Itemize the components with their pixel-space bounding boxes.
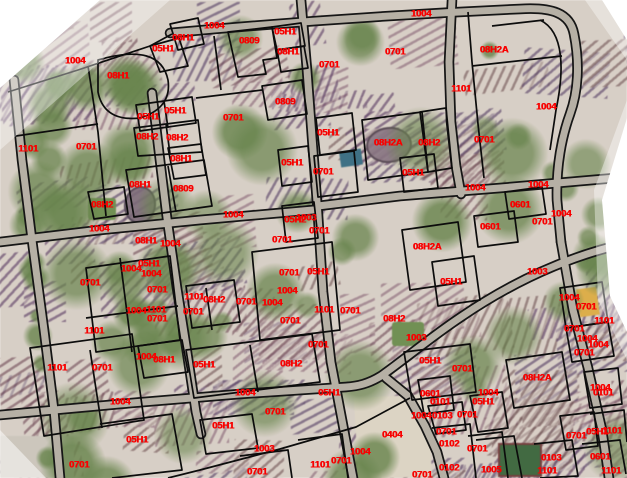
- parcel-label: 08H2A: [413, 242, 442, 253]
- parcel-label: 0701: [412, 470, 432, 478]
- parcel-label: 0701: [566, 431, 586, 442]
- parcel-label: 08H1: [277, 47, 299, 58]
- parcel-label: 0701: [309, 226, 329, 237]
- parcel-label: 0701: [247, 467, 267, 478]
- parcel-label: 1004: [411, 9, 431, 20]
- parcel-label: 0601: [480, 222, 500, 233]
- parcel-label: 1101: [602, 426, 622, 437]
- parcel-label: 0701: [92, 363, 112, 374]
- parcel-label: 05H1: [402, 168, 424, 179]
- parcel-label: 0701: [308, 340, 328, 351]
- parcel-label: 05H1: [212, 421, 234, 432]
- parcel-label: 08H2: [166, 133, 188, 144]
- parcel-label: 1101: [47, 363, 67, 374]
- parcel-label: 0102: [439, 439, 459, 450]
- parcel-label: 05H1: [137, 112, 159, 123]
- parcel-label: 08H1: [107, 71, 129, 82]
- parcel-label: 05H1: [152, 44, 174, 55]
- label-layer: 100408H1080905H108H11004070108H2A100405H…: [0, 0, 627, 478]
- parcel-label: 1004: [536, 102, 556, 113]
- parcel-label: 1004: [204, 21, 224, 32]
- parcel-label: 0701: [76, 142, 96, 153]
- parcel-label: 0701: [147, 285, 167, 296]
- parcel-label: 0701: [331, 456, 351, 467]
- parcel-label: 1004: [350, 447, 370, 458]
- parcel-label: 05H1: [164, 106, 186, 117]
- parcel-label: 1004: [126, 306, 146, 317]
- parcel-label: 1003: [527, 267, 547, 278]
- parcel-label: 0701: [147, 314, 167, 325]
- parcel-label: 0701: [319, 60, 339, 71]
- parcel-label: 0701: [313, 167, 333, 178]
- parcel-label: 1101: [184, 292, 204, 303]
- parcel-label: 08H2A: [374, 138, 403, 149]
- parcel-label: 0701: [457, 410, 477, 421]
- parcel-label: 1004: [141, 269, 161, 280]
- parcel-label: 1101: [537, 466, 557, 477]
- parcel-label: 0701: [236, 297, 256, 308]
- parcel-label: 08H2A: [523, 373, 552, 384]
- parcel-label: 1004: [110, 397, 130, 408]
- parcel-label: 0701: [280, 316, 300, 327]
- parcel-label: 1004: [262, 298, 282, 309]
- parcel-label: 0103: [432, 411, 452, 422]
- parcel-label: 1003: [254, 444, 274, 455]
- parcel-label: 0701: [467, 444, 487, 455]
- parcel-label: 0701: [80, 278, 100, 289]
- parcel-label: 05H1: [318, 388, 340, 399]
- parcel-label: 0701: [183, 307, 203, 318]
- parcel-label: 0809: [173, 184, 193, 195]
- parcel-label: 1101: [594, 316, 614, 327]
- parcel-label: 08H2: [280, 359, 302, 370]
- parcel-label: 1004: [65, 56, 85, 67]
- parcel-label: 1004: [89, 224, 109, 235]
- parcel-label: 0701: [223, 113, 243, 124]
- parcel-label: 05H1: [317, 128, 339, 139]
- parcel-label: 1101: [84, 326, 104, 337]
- parcel-label: 08H1: [129, 180, 151, 191]
- parcel-label: 08H2A: [480, 45, 509, 56]
- parcel-label: 0601: [510, 200, 530, 211]
- parcel-label: 0809: [239, 36, 259, 47]
- parcel-label: 1004: [551, 209, 571, 220]
- parcel-label: 1003: [296, 213, 316, 224]
- parcel-label: 1101: [451, 84, 471, 95]
- parcel-label: 0701: [385, 47, 405, 58]
- parcel-label: 0701: [279, 268, 299, 279]
- parcel-label: 1004: [223, 210, 243, 221]
- parcel-label: 05H1: [472, 397, 494, 408]
- parcel-label: 05H1: [307, 267, 329, 278]
- parcel-label: 0601: [590, 452, 610, 463]
- parcel-label: 08H2: [203, 295, 225, 306]
- map-canvas[interactable]: 100408H1080905H108H11004070108H2A100405H…: [0, 0, 627, 478]
- parcel-label: 1003: [406, 333, 426, 344]
- parcel-label: 08H2: [136, 132, 158, 143]
- parcel-label: 08H2: [418, 138, 440, 149]
- parcel-label: 0701: [532, 217, 552, 228]
- parcel-label: 0701: [576, 302, 596, 313]
- parcel-label: 0701: [69, 460, 89, 471]
- parcel-label: 08H1: [135, 236, 157, 247]
- parcel-label: 08H1: [170, 154, 192, 165]
- parcel-label: 0701: [452, 364, 472, 375]
- parcel-label: 0701: [340, 306, 360, 317]
- parcel-label: 08H1: [172, 33, 194, 44]
- parcel-label: 05H1: [281, 158, 303, 169]
- parcel-label: 08H2: [91, 200, 113, 211]
- parcel-label: 0701: [272, 235, 292, 246]
- parcel-label: 05H1: [126, 435, 148, 446]
- parcel-label: 0701: [474, 135, 494, 146]
- parcel-label: 1101: [18, 144, 38, 155]
- parcel-label: 0103: [541, 453, 561, 464]
- parcel-label: 1101: [314, 305, 334, 316]
- parcel-label: 0404: [382, 430, 402, 441]
- parcel-label: 1005: [481, 465, 501, 476]
- parcel-label: 1004: [160, 239, 180, 250]
- parcel-label: 0102: [439, 463, 459, 474]
- parcel-label: 1004: [121, 264, 141, 275]
- parcel-label: 1101: [601, 466, 621, 477]
- parcel-label: 0809: [275, 97, 295, 108]
- parcel-label: 1004: [528, 180, 548, 191]
- parcel-label: 1004: [411, 411, 431, 422]
- parcel-label: 05H1: [440, 277, 462, 288]
- parcel-label: 1004: [235, 388, 255, 399]
- parcel-label: 08H2: [383, 314, 405, 325]
- parcel-label: 0701: [574, 348, 594, 359]
- parcel-label: 0101: [593, 388, 613, 399]
- parcel-label: 05H1: [274, 27, 296, 38]
- parcel-label: 05H1: [419, 356, 441, 367]
- parcel-label: 0101: [430, 397, 450, 408]
- parcel-label: 0701: [265, 407, 285, 418]
- parcel-label: 05H1: [193, 360, 215, 371]
- parcel-label: 0701: [436, 427, 456, 438]
- parcel-label: 1004: [465, 183, 485, 194]
- parcel-label: 08H1: [153, 355, 175, 366]
- parcel-label: 1101: [310, 460, 330, 471]
- parcel-label: 1004: [277, 286, 297, 297]
